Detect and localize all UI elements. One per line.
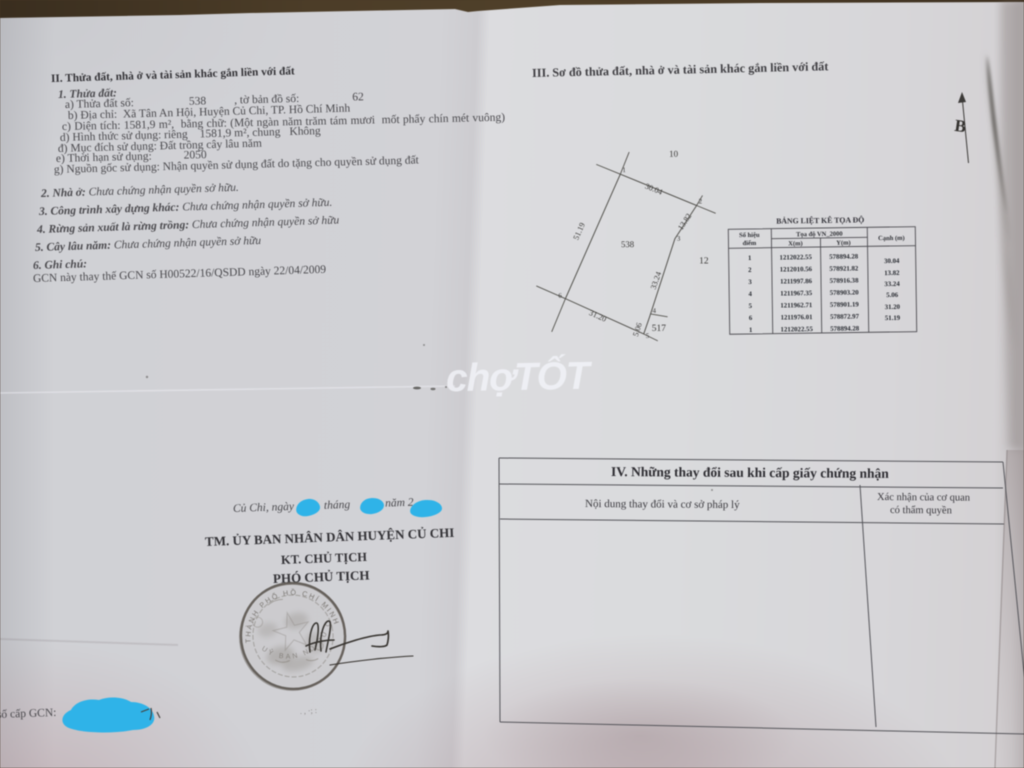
svg-text:1: 1 [749,327,753,334]
svg-text:điểm: điểm [743,240,757,247]
svg-text:1: 1 [748,255,752,262]
svg-text:578894.28: 578894.28 [829,253,859,260]
svg-text:Tọa độ VN_2000: Tọa độ VN_2000 [796,231,843,239]
svg-text:13.82: 13.82 [884,270,900,277]
svg-text:1212022.55: 1212022.55 [779,254,812,261]
svg-text:Cạnh (m): Cạnh (m) [878,235,905,242]
svg-text:578916.38: 578916.38 [830,277,860,284]
svg-text:12: 12 [699,256,709,266]
svg-text:6: 6 [558,292,562,300]
svg-text:1212022.55: 1212022.55 [780,326,813,333]
svg-text:5.06: 5.06 [886,292,899,299]
svg-text:5: 5 [646,332,650,340]
svg-text:31.20: 31.20 [885,304,901,311]
svg-text:578921.82: 578921.82 [829,265,859,272]
svg-text:Nội dung thay đổi và cơ sở phá: Nội dung thay đổi và cơ sở pháp lý [585,498,740,511]
svg-text:30.04: 30.04 [884,258,900,265]
svg-text:có thẩm quyền: có thẩm quyền [890,505,953,516]
svg-text:1211962.71: 1211962.71 [780,302,813,309]
svg-text:3: 3 [748,279,752,286]
svg-text:578894.28: 578894.28 [830,325,860,332]
svg-text:578903.20: 578903.20 [830,289,860,296]
svg-text:. , ·; :: . , ·; : [300,706,318,716]
svg-text:517: 517 [652,324,667,334]
svg-text:2: 2 [699,197,703,205]
svg-text:Số hiệu: Số hiệu [739,232,760,239]
svg-text:4: 4 [748,291,752,298]
svg-text:4: 4 [652,307,656,315]
svg-text:1211997.86: 1211997.86 [780,278,813,285]
svg-text:1: 1 [622,166,626,174]
svg-text:51.19: 51.19 [571,221,586,241]
svg-text:31.20: 31.20 [588,308,608,324]
svg-text:BẢNG LIỆT KÊ TỌA ĐỘ: BẢNG LIỆT KÊ TỌA ĐỘ [776,214,864,225]
svg-text:IV. Những thay đổi sau khi cấp: IV. Những thay đổi sau khi cấp giấy chứn… [611,464,889,481]
svg-text:2: 2 [748,267,752,274]
svg-text:Y(m): Y(m) [836,240,851,247]
svg-text:51.19: 51.19 [885,315,901,322]
svg-text:1211967.35: 1211967.35 [780,290,813,297]
svg-text:578872.97: 578872.97 [830,313,860,320]
svg-text:30.04: 30.04 [644,181,664,196]
svg-text:6: 6 [749,315,753,322]
svg-text:3: 3 [677,235,681,243]
svg-text:5.06: 5.06 [631,322,644,338]
svg-text:1212010.56: 1212010.56 [780,266,813,273]
svg-text:538: 538 [621,239,635,249]
svg-text:33.24: 33.24 [884,281,900,288]
svg-text:578901.19: 578901.19 [830,301,860,308]
svg-text:10: 10 [669,149,679,159]
svg-text:1211976.01: 1211976.01 [781,314,814,321]
svg-text:5: 5 [749,303,753,310]
svg-text:X(m): X(m) [788,240,803,247]
svg-text:Xác nhận của cơ quan: Xác nhận của cơ quan [877,492,971,504]
